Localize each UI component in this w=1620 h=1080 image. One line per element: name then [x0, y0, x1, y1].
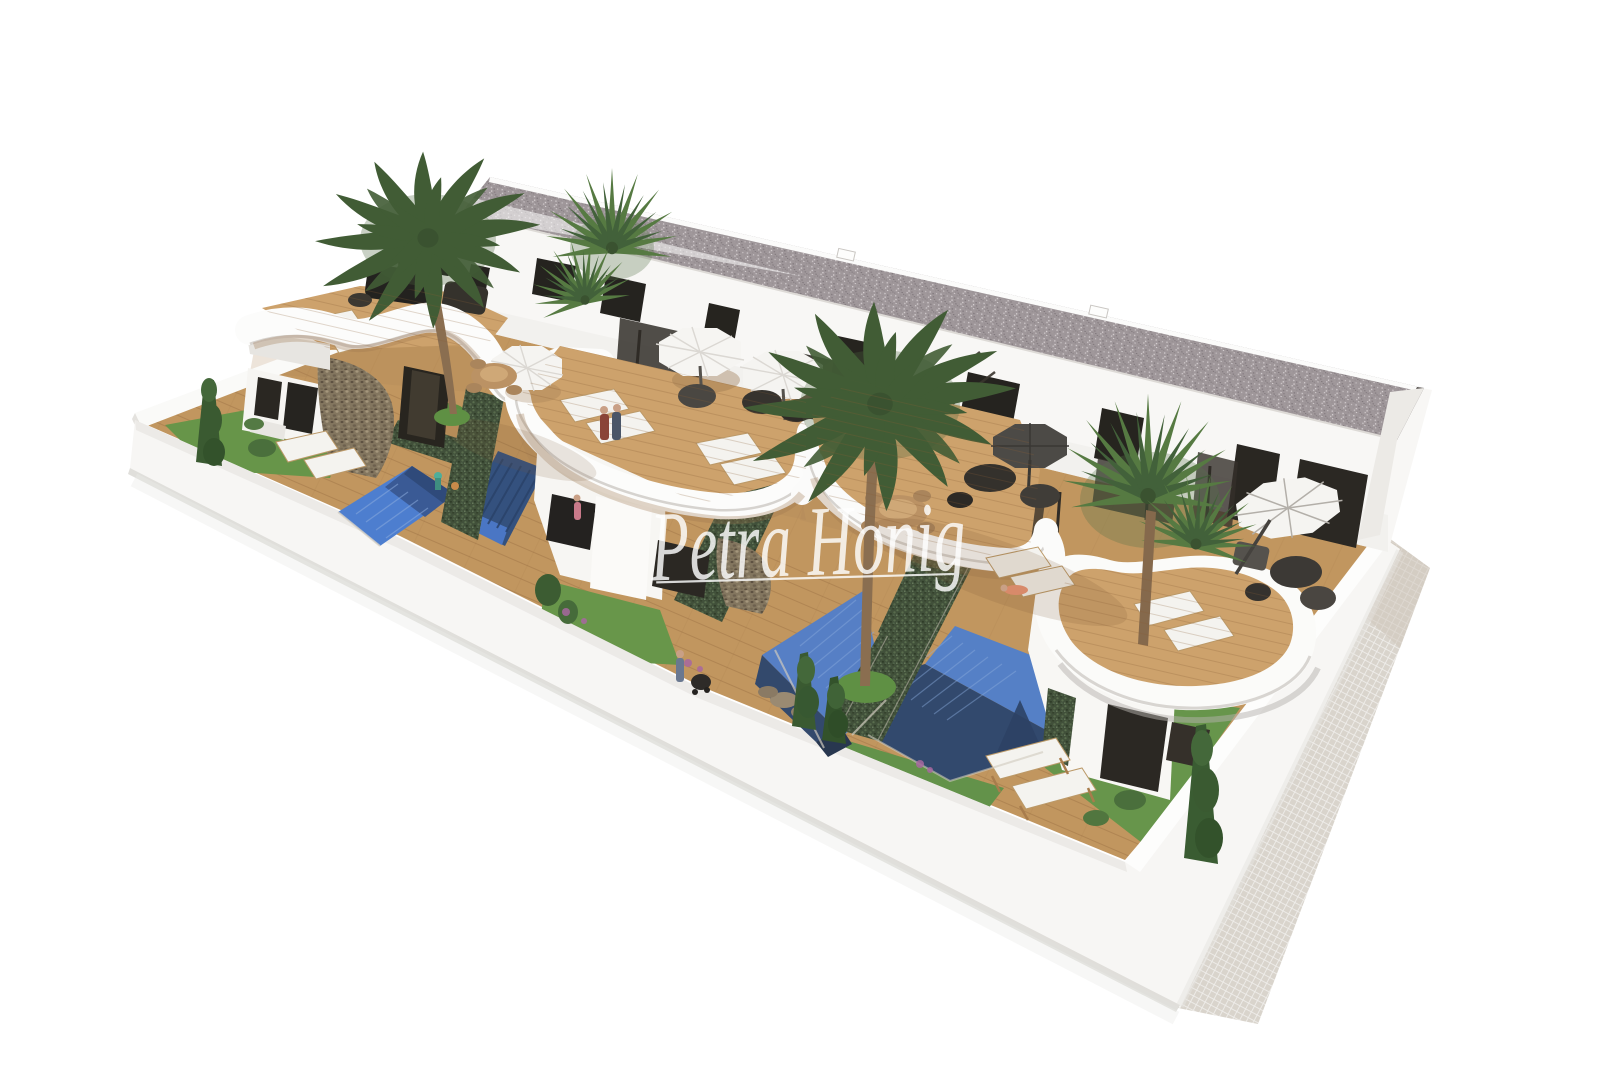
svg-text:Petra Honig: Petra Honig [648, 481, 967, 603]
